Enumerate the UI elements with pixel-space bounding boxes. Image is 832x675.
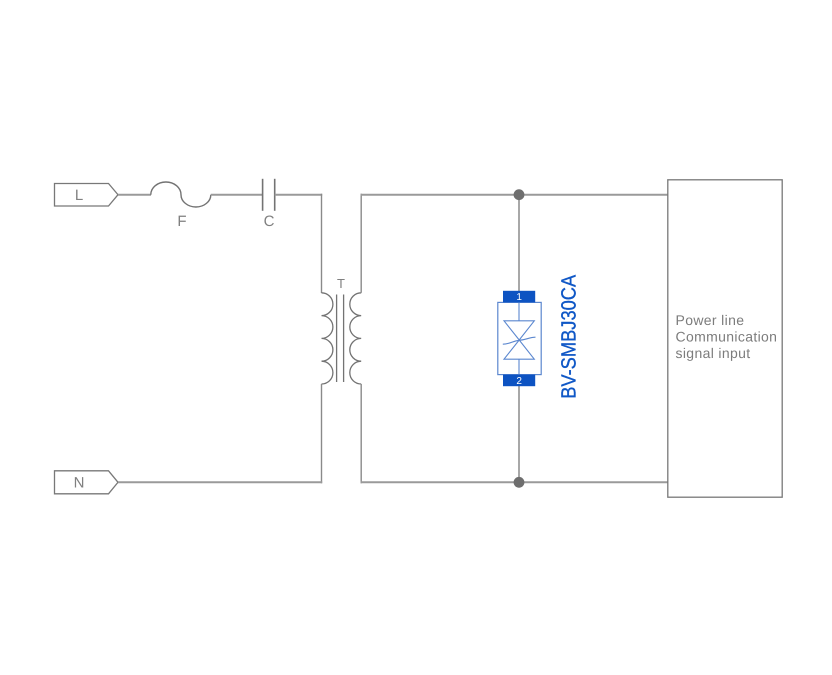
svg-text:F: F [177,213,186,230]
svg-text:L: L [75,187,83,204]
svg-text:Power line: Power line [676,312,745,328]
svg-text:T: T [337,276,345,291]
svg-text:signal input: signal input [676,345,751,361]
svg-text:BV-SMBJ30CA: BV-SMBJ30CA [558,275,581,399]
svg-text:Communication: Communication [676,329,778,345]
svg-text:C: C [264,213,275,230]
svg-text:2: 2 [516,376,522,387]
svg-text:1: 1 [516,292,522,303]
svg-text:N: N [74,475,85,492]
